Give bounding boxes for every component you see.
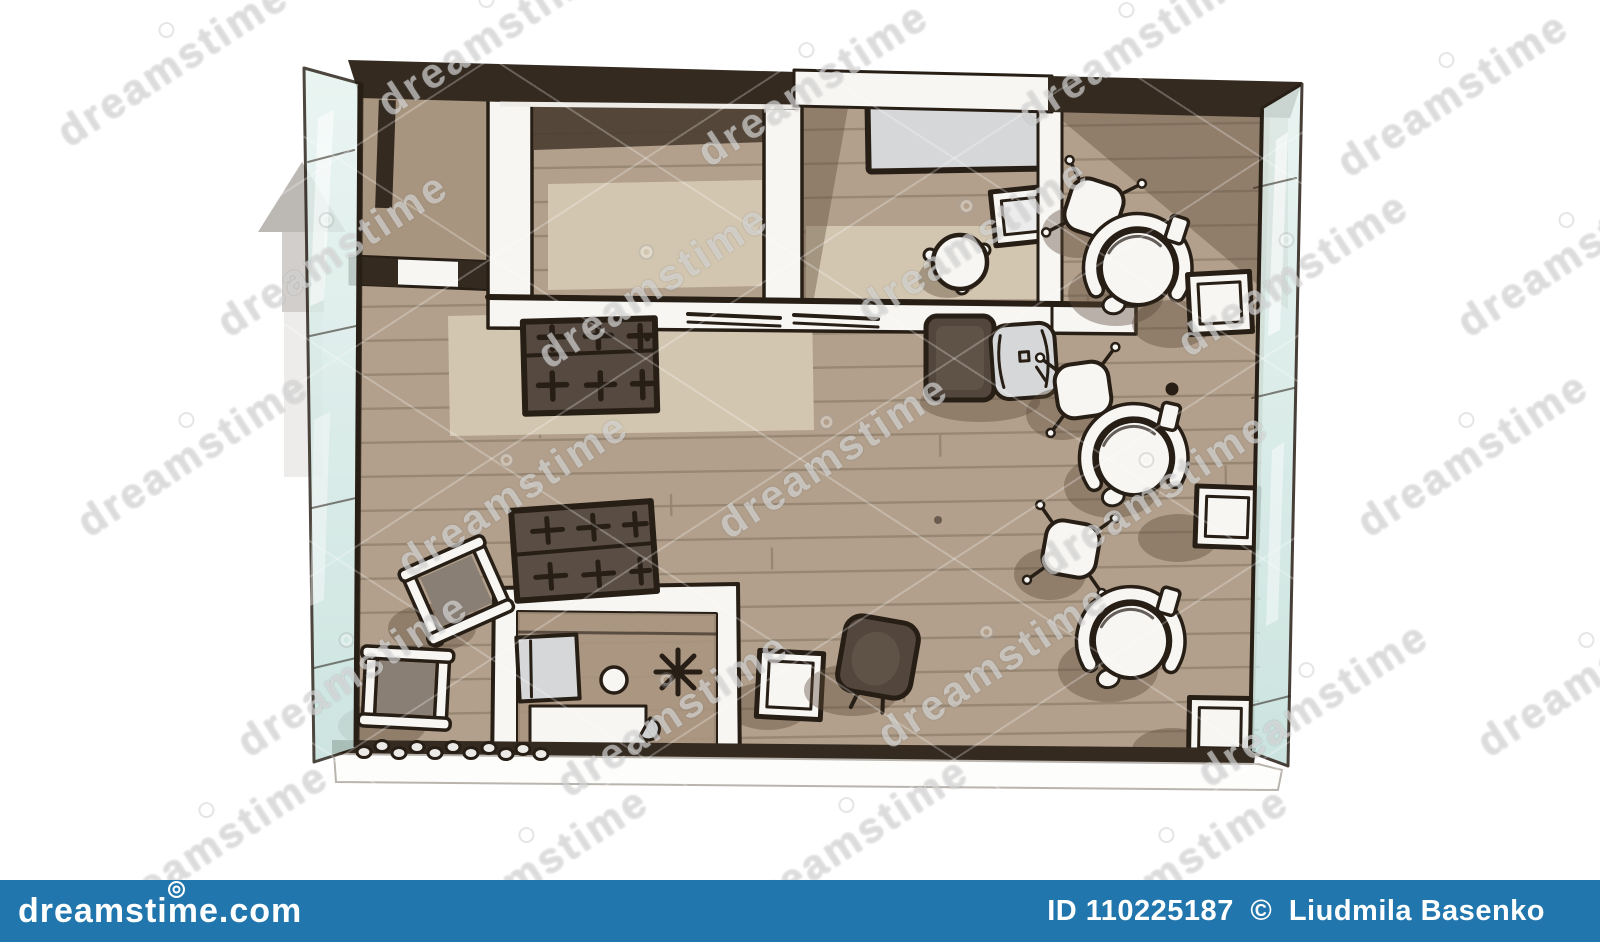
dreamstime-logo: dreamstime.com <box>18 892 302 931</box>
glass-wall-right <box>1250 84 1302 766</box>
island-sink <box>601 667 627 693</box>
island-plant-star <box>656 650 700 694</box>
spiral-icon <box>168 881 185 898</box>
floorplan-drawing <box>0 0 1600 942</box>
floor-dot <box>1166 383 1179 396</box>
author-name: Liudmila Basenko <box>1289 895 1545 927</box>
stock-photo-canvas: dreamstime dreamstime dreamstime dreamst… <box>0 0 1600 942</box>
floor-speck <box>934 516 942 524</box>
top-wall-bedroom <box>794 70 1052 112</box>
bedroom-right-wall <box>1038 86 1062 308</box>
image-id: ID 110225187 <box>1047 895 1234 927</box>
kitchen-rug <box>548 180 762 290</box>
kitchen-left-wall <box>488 80 532 302</box>
dreamstime-logo-text: dreamstime.com <box>18 892 302 930</box>
lounge-side-table-2 <box>1195 486 1259 548</box>
stock-footer-bar: dreamstime.com ID 110225187 © Liudmila B… <box>0 880 1600 942</box>
glass-wall-left <box>304 68 362 762</box>
gas-stove <box>523 318 657 413</box>
copyright-icon: © <box>1250 895 1272 927</box>
closet-room <box>350 96 500 290</box>
lounge-side-table-1 <box>1187 271 1252 334</box>
image-credit: ID 110225187 © Liudmila Basenko <box>1047 895 1545 928</box>
island-gas-hob <box>511 501 657 601</box>
island-cabinet <box>516 634 579 701</box>
